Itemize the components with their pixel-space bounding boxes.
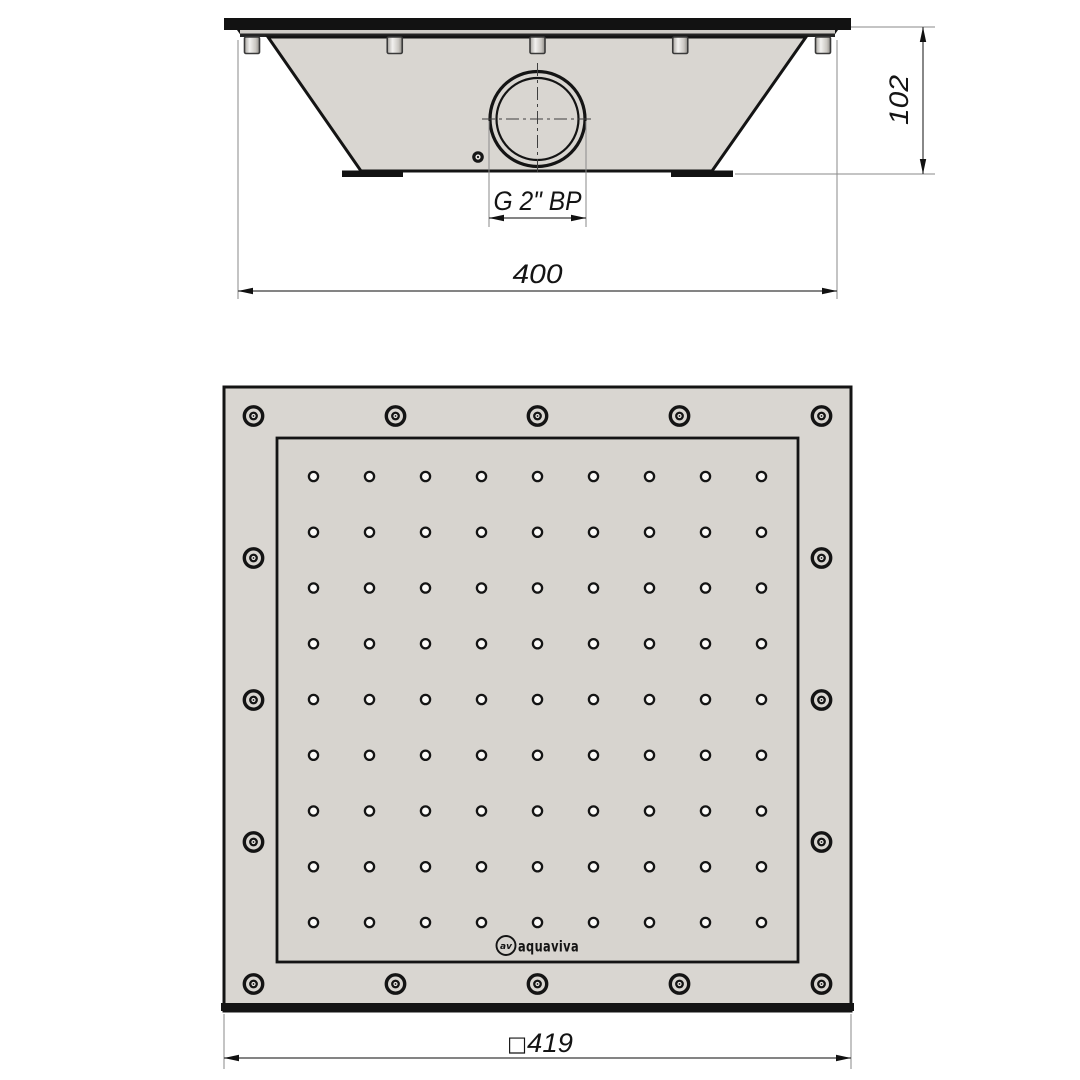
technical-drawing: G 2" BP 400 102 — [0, 0, 1080, 1080]
drain-hole — [309, 751, 318, 760]
screw-icon — [386, 407, 404, 425]
thread-dimension-label: G 2" BP — [494, 186, 582, 216]
screw-icon — [670, 975, 688, 993]
screw-icon — [812, 407, 830, 425]
drain-hole — [365, 751, 374, 760]
drain-hole — [365, 472, 374, 481]
drain-hole — [645, 806, 654, 815]
drain-hole — [701, 528, 710, 537]
drain-hole — [421, 639, 430, 648]
drain-hole — [757, 806, 766, 815]
drain-hole — [477, 528, 486, 537]
stud-icon — [816, 37, 831, 54]
drain-hole — [533, 528, 542, 537]
drain-hole — [421, 806, 430, 815]
drain-hole — [421, 751, 430, 760]
size-dimension: □ 419 — [224, 1014, 851, 1069]
drain-hole — [701, 639, 710, 648]
drain-hole — [421, 583, 430, 592]
drain-hole — [365, 639, 374, 648]
drain-hole — [589, 528, 598, 537]
drain-hole — [589, 639, 598, 648]
screw-icon — [812, 833, 830, 851]
screw-icon — [244, 833, 262, 851]
drain-hole — [309, 528, 318, 537]
drain-hole — [589, 583, 598, 592]
screw-icon — [528, 407, 546, 425]
drain-hole — [757, 695, 766, 704]
drain-hole — [589, 695, 598, 704]
drain-hole — [533, 639, 542, 648]
drain-hole — [365, 695, 374, 704]
drain-hole — [533, 751, 542, 760]
drain-hole — [309, 862, 318, 871]
drain-hole — [589, 472, 598, 481]
screw-icon — [812, 691, 830, 709]
mount-foot-left — [342, 171, 403, 178]
outer-plate-bottom-edge — [221, 1003, 854, 1011]
logo-monogram: av — [500, 942, 513, 952]
drain-hole — [589, 751, 598, 760]
logo-wordmark: aquaviva — [518, 938, 579, 956]
body-screw-icon — [472, 151, 484, 163]
drain-hole — [421, 918, 430, 927]
plan-view: av aquaviva □ 419 — [221, 387, 854, 1069]
drain-hole — [757, 751, 766, 760]
drain-hole — [533, 806, 542, 815]
screw-icon — [528, 975, 546, 993]
drain-hole — [309, 472, 318, 481]
drain-hole — [645, 583, 654, 592]
drain-hole — [533, 918, 542, 927]
drain-hole — [645, 695, 654, 704]
drain-hole — [589, 862, 598, 871]
screw-icon — [812, 549, 830, 567]
drain-hole — [645, 918, 654, 927]
drain-hole — [701, 918, 710, 927]
drain-hole — [645, 639, 654, 648]
drain-hole — [309, 695, 318, 704]
drain-hole — [421, 862, 430, 871]
height-dimension-label: 102 — [884, 75, 914, 125]
drain-hole — [701, 806, 710, 815]
drain-hole — [421, 472, 430, 481]
drain-hole — [757, 639, 766, 648]
drain-hole — [757, 862, 766, 871]
size-dimension-label: 419 — [527, 1028, 573, 1058]
drain-hole — [701, 751, 710, 760]
drain-hole — [533, 583, 542, 592]
screw-icon — [244, 407, 262, 425]
drain-hole — [477, 695, 486, 704]
drain-hole — [589, 806, 598, 815]
stud-icon — [245, 37, 260, 54]
drain-hole — [757, 472, 766, 481]
drain-hole — [365, 528, 374, 537]
drain-hole — [421, 528, 430, 537]
drain-hole — [477, 472, 486, 481]
drain-hole — [477, 806, 486, 815]
mount-foot-right — [671, 171, 733, 178]
drain-hole — [477, 862, 486, 871]
drain-hole — [701, 695, 710, 704]
drain-hole — [701, 862, 710, 871]
drain-hole — [309, 583, 318, 592]
screw-icon — [244, 975, 262, 993]
drain-hole — [365, 862, 374, 871]
drain-hole — [645, 862, 654, 871]
drain-hole — [701, 472, 710, 481]
drain-hole — [645, 472, 654, 481]
drain-hole — [477, 751, 486, 760]
flange-rim-highlight — [240, 30, 835, 34]
drain-hole — [645, 751, 654, 760]
drain-hole — [477, 639, 486, 648]
stud-icon — [673, 37, 688, 54]
drain-hole — [701, 583, 710, 592]
drain-hole — [533, 695, 542, 704]
drain-hole — [365, 918, 374, 927]
drain-hole — [309, 639, 318, 648]
drain-hole — [533, 862, 542, 871]
stud-icon — [387, 37, 402, 54]
drain-hole — [365, 583, 374, 592]
screw-icon — [244, 691, 262, 709]
drain-hole — [365, 806, 374, 815]
stud-icon — [530, 37, 545, 54]
drain-hole — [309, 806, 318, 815]
drain-hole — [757, 583, 766, 592]
screw-icon — [812, 975, 830, 993]
technical-drawing-page: G 2" BP 400 102 — [0, 0, 1080, 1080]
drain-hole — [477, 583, 486, 592]
drain-hole — [309, 918, 318, 927]
drain-hole — [477, 918, 486, 927]
square-symbol: □ — [507, 1032, 527, 1056]
side-view: G 2" BP 400 102 — [224, 18, 935, 299]
screw-icon — [244, 549, 262, 567]
drain-hole — [533, 472, 542, 481]
screw-icon — [670, 407, 688, 425]
drain-hole — [757, 528, 766, 537]
screw-icon — [386, 975, 404, 993]
drain-hole — [757, 918, 766, 927]
drain-hole — [421, 695, 430, 704]
drain-hole — [589, 918, 598, 927]
drain-hole — [645, 528, 654, 537]
width-dimension-label: 400 — [513, 259, 563, 289]
